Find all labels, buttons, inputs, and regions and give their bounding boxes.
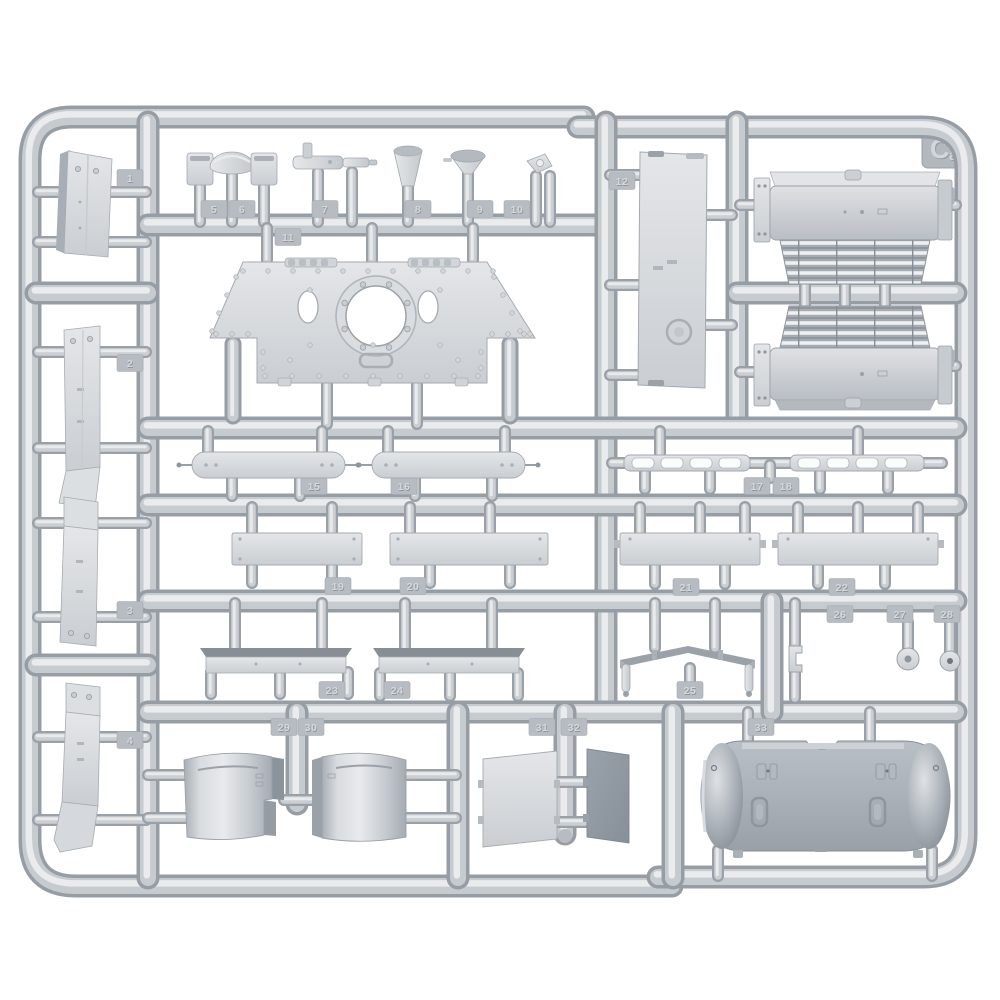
part-curved-rear-panel bbox=[701, 741, 950, 858]
part-number-tab: 22 bbox=[117, 355, 143, 372]
part-mudguard-plate-2 bbox=[59, 326, 100, 508]
part-number-tab: 1111 bbox=[275, 229, 301, 246]
svg-text:30: 30 bbox=[305, 722, 318, 734]
part-number-tab: 3333 bbox=[748, 719, 774, 736]
svg-text:16: 16 bbox=[398, 481, 411, 493]
svg-text:25: 25 bbox=[684, 685, 697, 697]
svg-text:33: 33 bbox=[755, 722, 768, 734]
part-tall-hull-panel bbox=[638, 151, 707, 388]
part-number-tab: 55 bbox=[201, 201, 227, 218]
part-number-tab: 3232 bbox=[561, 719, 587, 736]
part-number-tab: 2121 bbox=[673, 579, 699, 596]
oval-opening bbox=[418, 291, 438, 323]
part-curved-shell-1 bbox=[184, 753, 284, 839]
part-hanger-rail-2 bbox=[790, 455, 924, 471]
part-flat-strip-1 bbox=[232, 533, 362, 565]
sprue-svg: C C a a bbox=[0, 0, 1000, 1000]
svg-text:20: 20 bbox=[407, 581, 420, 593]
part-number-tab: 99 bbox=[467, 201, 493, 218]
svg-text:1: 1 bbox=[127, 173, 133, 185]
part-number-tab: 2020 bbox=[400, 578, 426, 595]
svg-text:29: 29 bbox=[278, 722, 291, 734]
svg-text:10: 10 bbox=[511, 204, 524, 216]
part-number-tab: 2525 bbox=[677, 682, 703, 699]
svg-text:15: 15 bbox=[308, 481, 321, 493]
part-number-tab: 1515 bbox=[301, 478, 327, 495]
part-mudguard-plate-1 bbox=[56, 150, 112, 257]
svg-text:3: 3 bbox=[127, 605, 133, 617]
part-beveled-fender-strip-1 bbox=[200, 648, 352, 673]
svg-text:12: 12 bbox=[616, 176, 629, 188]
svg-text:21: 21 bbox=[680, 582, 693, 594]
svg-text:27: 27 bbox=[894, 609, 907, 621]
part-louvered-intake-box-2 bbox=[754, 306, 952, 410]
svg-text:23: 23 bbox=[326, 685, 339, 697]
part-number-tab: 1616 bbox=[391, 478, 417, 495]
part-periscope-guard-1 bbox=[187, 153, 213, 185]
part-number-tab: 1010 bbox=[504, 201, 530, 218]
svg-text:5: 5 bbox=[211, 204, 217, 216]
svg-text:26: 26 bbox=[834, 609, 847, 621]
part-number-tab: 2727 bbox=[887, 606, 913, 623]
part-hub-cap-disc-2 bbox=[940, 651, 960, 671]
part-number-tab: 3030 bbox=[298, 719, 324, 736]
svg-text:28: 28 bbox=[941, 609, 954, 621]
part-louvered-intake-box-1 bbox=[754, 170, 952, 284]
part-number-tab: 2323 bbox=[319, 682, 345, 699]
part-mudguard-plate-4 bbox=[54, 683, 100, 852]
svg-text:31: 31 bbox=[536, 722, 549, 734]
hatch-opening bbox=[346, 286, 406, 346]
part-number-tab: 2424 bbox=[384, 682, 410, 699]
part-hanger-rail-1 bbox=[624, 455, 750, 471]
part-number-tab: 2828 bbox=[934, 606, 960, 623]
svg-text:18: 18 bbox=[780, 481, 793, 493]
svg-text:8: 8 bbox=[415, 204, 421, 216]
part-hub-cap-disc-1 bbox=[897, 648, 919, 670]
part-number-tab: 1717 bbox=[744, 478, 770, 495]
part-number-tab: 1919 bbox=[325, 578, 351, 595]
part-number-tab: 1212 bbox=[609, 173, 635, 190]
part-number-tab: 2929 bbox=[271, 719, 297, 736]
part-skirt-strip-2 bbox=[357, 452, 541, 478]
svg-text:17: 17 bbox=[751, 481, 764, 493]
part-stowage-cup bbox=[394, 146, 422, 186]
part-number-tab: 77 bbox=[312, 201, 338, 218]
svg-text:6: 6 bbox=[239, 204, 245, 216]
part-beveled-fender-strip-2 bbox=[373, 648, 525, 673]
svg-text:32: 32 bbox=[568, 722, 581, 734]
part-number-tab: 33 bbox=[117, 602, 143, 619]
svg-text:2: 2 bbox=[127, 358, 133, 370]
svg-text:7: 7 bbox=[322, 204, 328, 216]
oval-opening bbox=[298, 291, 318, 323]
svg-text:19: 19 bbox=[332, 581, 345, 593]
part-flat-strip-3 bbox=[614, 533, 766, 565]
part-number-tab: 44 bbox=[117, 732, 143, 749]
part-access-panel-light bbox=[478, 751, 560, 847]
part-number-tab: 2626 bbox=[827, 606, 853, 623]
part-flat-strip-4 bbox=[772, 533, 944, 565]
svg-text:9: 9 bbox=[477, 204, 483, 216]
part-angled-bracket bbox=[527, 154, 552, 173]
part-skirt-strip-1 bbox=[177, 452, 361, 478]
svg-text:24: 24 bbox=[391, 685, 404, 697]
svg-text:11: 11 bbox=[282, 232, 294, 244]
part-curved-shell-2 bbox=[312, 753, 406, 841]
part-number-tab: 66 bbox=[229, 201, 255, 218]
part-flat-strip-2 bbox=[390, 533, 548, 565]
part-number-tab: 1818 bbox=[773, 478, 799, 495]
part-funnel-horn bbox=[443, 150, 485, 174]
part-periscope-guard-2 bbox=[251, 153, 277, 185]
part-mudguard-plate-3 bbox=[60, 497, 98, 646]
part-cylindrical-fitting bbox=[293, 143, 377, 169]
part-number-tab: 88 bbox=[405, 201, 431, 218]
svg-text:22: 22 bbox=[836, 582, 849, 594]
sprue-photo: C C a a bbox=[0, 0, 1000, 1000]
svg-text:4: 4 bbox=[127, 735, 133, 747]
part-number-tab: 2222 bbox=[829, 579, 855, 596]
part-turret-roof-plate bbox=[210, 258, 535, 386]
part-dome-ventilator-cap bbox=[210, 152, 254, 174]
part-number-tab: 11 bbox=[117, 170, 143, 187]
part-c-bracket bbox=[789, 646, 802, 672]
part-number-tab: 3131 bbox=[529, 719, 555, 736]
